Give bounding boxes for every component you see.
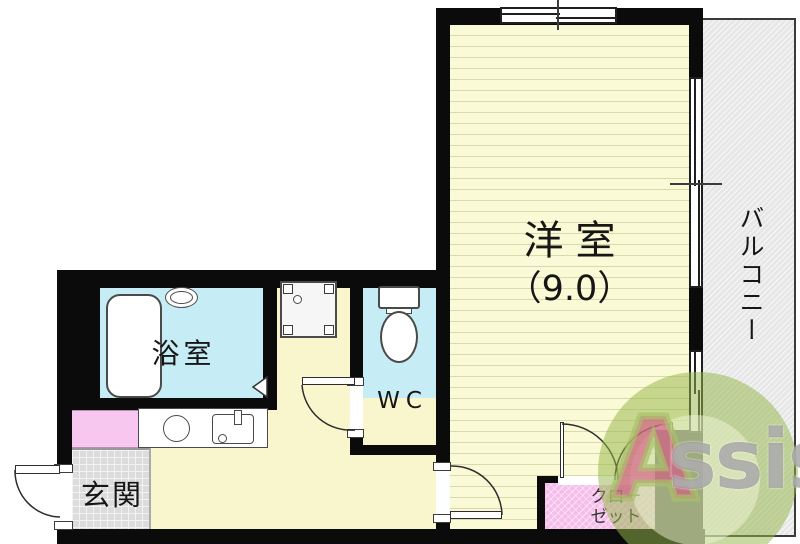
closet-label-line1: クロー bbox=[556, 488, 676, 507]
floor-plan: 洋室 （9.0） バルコニー 浴室 WC 玄関 クロー ゼット A ssist bbox=[0, 0, 800, 544]
western-room-size: （9.0） bbox=[450, 260, 689, 311]
western-room-label: 洋室 bbox=[450, 208, 689, 266]
entrance-label: 玄関 bbox=[72, 472, 150, 514]
wc-label: WC bbox=[363, 388, 436, 414]
entrance-door-arc bbox=[15, 470, 60, 517]
closet-door-arc-right bbox=[615, 424, 671, 480]
main-room-door-arc bbox=[451, 466, 502, 515]
closet-label-line2: ゼット bbox=[556, 508, 676, 527]
wc-door-arc bbox=[302, 385, 355, 430]
closet-door-arc-left bbox=[562, 424, 618, 480]
balcony-label: バルコニー bbox=[728, 200, 768, 350]
bathroom-label: 浴室 bbox=[100, 332, 263, 372]
bath-door-marker bbox=[253, 377, 267, 397]
